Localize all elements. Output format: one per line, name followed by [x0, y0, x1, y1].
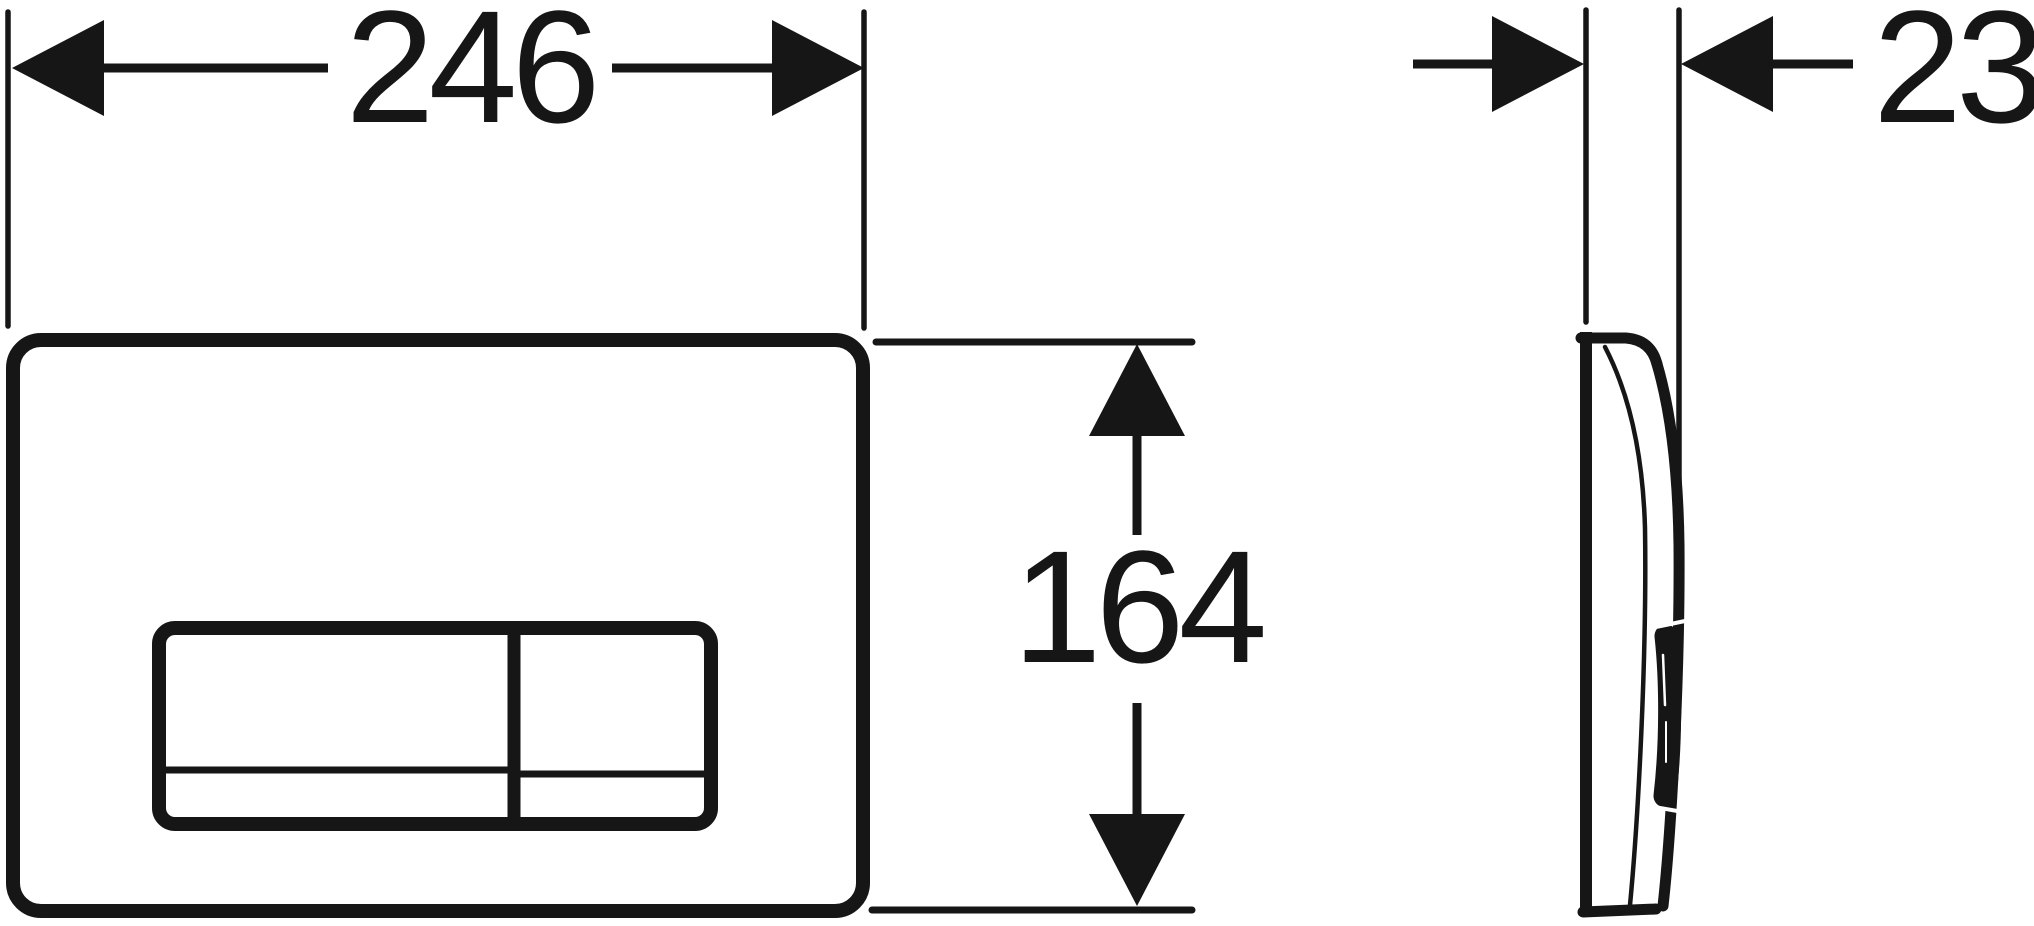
dimension-height: 164	[872, 342, 1263, 910]
front-view	[13, 340, 863, 911]
depth-arrowhead-left-icon	[1492, 16, 1584, 112]
button-panel-outline	[159, 628, 711, 824]
height-arrowhead-up-icon	[1089, 344, 1185, 436]
width-dimension-label: 246	[346, 0, 595, 156]
depth-arrowhead-right-icon	[1681, 16, 1773, 112]
height-arrowhead-down-icon	[1089, 814, 1185, 906]
width-arrowhead-left-icon	[12, 20, 104, 116]
technical-drawing-canvas: 246 23 164	[0, 0, 2034, 926]
side-profile-bottom-edge	[1583, 909, 1656, 912]
side-button-profile	[1665, 636, 1670, 796]
flush-plate-dimension-drawing: 246 23 164	[0, 0, 2034, 926]
side-view	[1581, 332, 1685, 914]
dimension-depth: 23	[1413, 0, 2034, 497]
side-profile-top-edge	[1581, 338, 1657, 364]
width-arrowhead-right-icon	[772, 20, 864, 116]
dimension-width: 246	[8, 0, 864, 328]
side-profile-inner-edge	[1605, 347, 1645, 905]
depth-dimension-label: 23	[1873, 0, 2034, 156]
height-dimension-label: 164	[1013, 517, 1264, 696]
